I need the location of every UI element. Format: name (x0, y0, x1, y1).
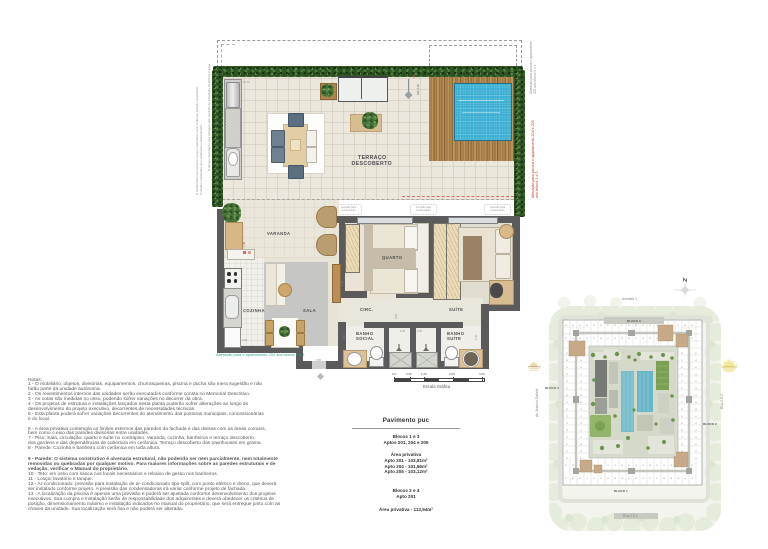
svg-text:07: 07 (677, 325, 679, 327)
svg-text:01: 01 (579, 325, 581, 327)
svg-text:07: 07 (580, 374, 582, 376)
svg-text:04: 04 (642, 478, 644, 480)
svg-text:07: 07 (614, 338, 616, 340)
svg-text:02: 02 (566, 353, 568, 355)
svg-text:15: 15 (580, 423, 582, 425)
svg-text:12: 12 (572, 338, 574, 340)
svg-text:09: 09 (566, 374, 568, 376)
svg-text:15: 15 (566, 423, 568, 425)
svg-text:08: 08 (580, 402, 582, 404)
svg-text:10: 10 (600, 478, 602, 480)
svg-text:03: 03 (565, 338, 567, 340)
svg-text:08: 08 (566, 360, 568, 362)
svg-text:08: 08 (695, 402, 697, 404)
svg-text:04: 04 (566, 458, 568, 460)
svg-text:02: 02 (649, 325, 651, 327)
svg-text:02: 02 (579, 338, 581, 340)
svg-text:05: 05 (681, 353, 683, 355)
svg-text:08: 08 (681, 430, 683, 432)
svg-text:09: 09 (681, 388, 683, 390)
svg-text:05: 05 (580, 458, 582, 460)
svg-text:07: 07 (681, 381, 683, 383)
svg-text:10: 10 (579, 478, 581, 480)
svg-text:BLOCO 4: BLOCO 4 (545, 386, 559, 390)
svg-text:10: 10 (635, 465, 637, 467)
svg-text:08: 08 (695, 409, 697, 411)
svg-text:02: 02 (580, 388, 582, 390)
svg-text:12: 12 (649, 478, 651, 480)
svg-text:01: 01 (607, 338, 609, 340)
svg-text:02: 02 (621, 338, 623, 340)
svg-text:02: 02 (628, 338, 630, 340)
svg-text:07: 07 (635, 338, 637, 340)
svg-text:09: 09 (600, 338, 602, 340)
svg-text:06: 06 (681, 444, 683, 446)
svg-text:BLOCO 1: BLOCO 1 (614, 489, 628, 493)
svg-text:06: 06 (663, 465, 665, 467)
svg-text:06: 06 (593, 325, 595, 327)
svg-text:05: 05 (565, 465, 567, 467)
svg-text:10: 10 (681, 402, 683, 404)
svg-text:05: 05 (566, 367, 568, 369)
svg-text:12: 12 (607, 478, 609, 480)
svg-text:05: 05 (681, 409, 683, 411)
svg-text:01: 01 (695, 416, 697, 418)
svg-text:10: 10 (566, 430, 568, 432)
svg-text:02: 02 (621, 465, 623, 467)
svg-text:02: 02 (566, 409, 568, 411)
svg-text:10: 10 (566, 451, 568, 453)
svg-text:02: 02 (614, 325, 616, 327)
svg-text:09: 09 (586, 478, 588, 480)
svg-text:09: 09 (635, 325, 637, 327)
svg-text:06: 06 (614, 478, 616, 480)
svg-text:BLOCO 3: BLOCO 3 (627, 319, 641, 323)
svg-text:08: 08 (670, 478, 672, 480)
svg-text:08: 08 (580, 444, 582, 446)
svg-text:12: 12 (580, 416, 582, 418)
svg-text:BLOCO 2: BLOCO 2 (703, 422, 717, 426)
svg-text:04: 04 (614, 465, 616, 467)
svg-text:10: 10 (566, 402, 568, 404)
svg-text:03: 03 (572, 465, 574, 467)
svg-text:06: 06 (695, 437, 697, 439)
svg-text:06: 06 (695, 374, 697, 376)
svg-text:07: 07 (565, 478, 567, 480)
svg-text:09: 09 (695, 353, 697, 355)
svg-text:03: 03 (681, 374, 683, 376)
svg-text:03: 03 (593, 478, 595, 480)
svg-text:12: 12 (681, 437, 683, 439)
svg-text:02: 02 (628, 478, 630, 480)
svg-text:09: 09 (586, 325, 588, 327)
svg-text:01: 01 (600, 325, 602, 327)
svg-text:15: 15 (691, 465, 693, 467)
svg-text:06: 06 (565, 325, 567, 327)
svg-text:04: 04 (628, 325, 630, 327)
svg-text:02: 02 (695, 367, 697, 369)
svg-text:10: 10 (642, 338, 644, 340)
svg-text:15: 15 (681, 360, 683, 362)
svg-text:01: 01 (635, 478, 637, 480)
svg-text:01: 01 (642, 325, 644, 327)
svg-text:10: 10 (695, 388, 697, 390)
svg-text:07: 07 (656, 478, 658, 480)
svg-text:01: 01 (695, 451, 697, 453)
svg-text:07: 07 (580, 437, 582, 439)
svg-text:Rua 2.5.2: Rua 2.5.2 (720, 394, 724, 409)
svg-text:09: 09 (572, 478, 574, 480)
svg-text:03: 03 (566, 381, 568, 383)
svg-text:12: 12 (656, 325, 658, 327)
svg-text:08: 08 (580, 381, 582, 383)
svg-text:10: 10 (607, 465, 609, 467)
svg-text:Rua 2.5.1: Rua 2.5.1 (623, 514, 638, 518)
svg-text:08: 08 (649, 465, 651, 467)
svg-text:06: 06 (580, 395, 582, 397)
svg-text:03: 03 (691, 338, 693, 340)
svg-text:02: 02 (586, 338, 588, 340)
svg-text:10: 10 (642, 465, 644, 467)
svg-text:04: 04 (649, 338, 651, 340)
svg-text:06: 06 (566, 395, 568, 397)
svg-text:09: 09 (621, 478, 623, 480)
svg-text:04: 04 (684, 325, 686, 327)
svg-text:15: 15 (566, 437, 568, 439)
svg-text:10: 10 (580, 367, 582, 369)
svg-text:15: 15 (628, 465, 630, 467)
svg-text:05: 05 (695, 430, 697, 432)
svg-text:15: 15 (681, 395, 683, 397)
svg-text:08: 08 (663, 478, 665, 480)
svg-text:07: 07 (621, 325, 623, 327)
svg-text:04: 04 (607, 325, 609, 327)
svg-text:12: 12 (695, 423, 697, 425)
svg-text:01: 01 (566, 444, 568, 446)
svg-text:12: 12 (580, 430, 582, 432)
svg-text:02: 02 (681, 367, 683, 369)
svg-text:12: 12 (566, 388, 568, 390)
svg-text:05: 05 (681, 423, 683, 425)
svg-text:10: 10 (670, 465, 672, 467)
svg-text:08: 08 (695, 360, 697, 362)
svg-text:09: 09 (691, 325, 693, 327)
svg-text:06: 06 (580, 360, 582, 362)
svg-text:06: 06 (695, 395, 697, 397)
svg-text:Av. Antonio Gallotti: Av. Antonio Gallotti (535, 388, 539, 417)
svg-text:Avenida 1: Avenida 1 (622, 297, 637, 301)
svg-text:12: 12 (656, 338, 658, 340)
svg-text:02: 02 (681, 416, 683, 418)
svg-text:05: 05 (677, 478, 679, 480)
svg-text:10: 10 (593, 338, 595, 340)
svg-text:09: 09 (656, 465, 658, 467)
svg-text:03: 03 (684, 478, 686, 480)
svg-text:01: 01 (695, 381, 697, 383)
svg-text:02: 02 (580, 451, 582, 453)
svg-text:04: 04 (691, 478, 693, 480)
svg-text:15: 15 (566, 416, 568, 418)
svg-text:15: 15 (695, 458, 697, 460)
svg-text:03: 03 (695, 444, 697, 446)
svg-text:07: 07 (572, 325, 574, 327)
svg-text:02: 02 (580, 409, 582, 411)
